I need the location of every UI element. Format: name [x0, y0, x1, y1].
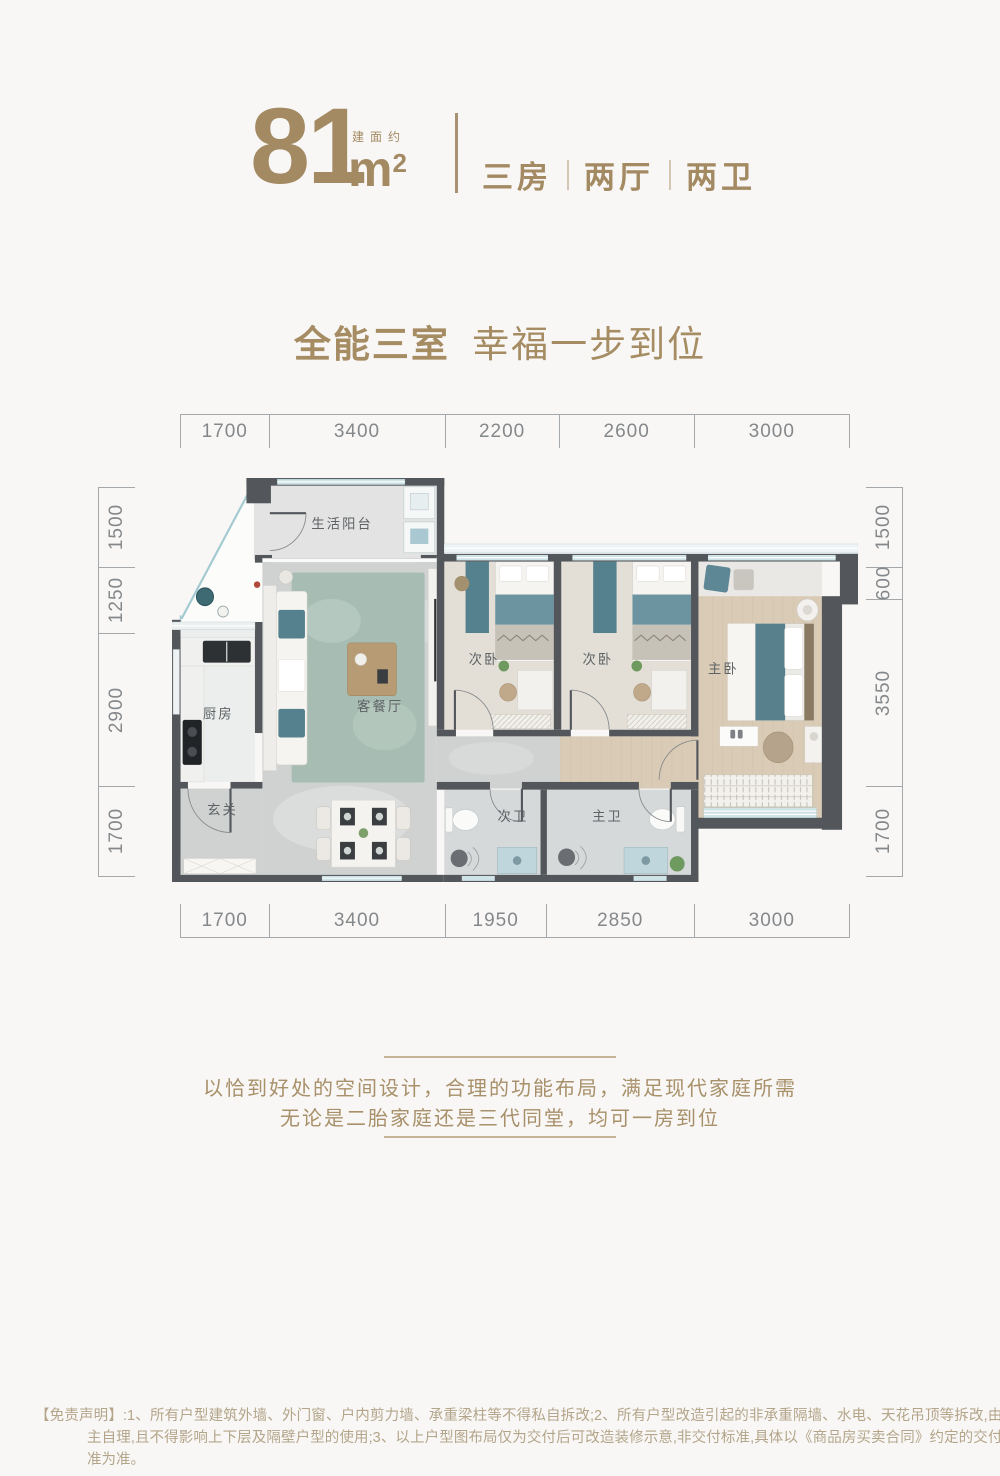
- desk-chair: [634, 684, 651, 702]
- terrace-kettle: [218, 606, 229, 617]
- feature-list: 三房 两厅 两卫: [482, 152, 756, 197]
- area-unit: m2: [348, 144, 407, 194]
- chair: [317, 837, 331, 860]
- desk-chair: [500, 684, 517, 702]
- dresser-mat: [627, 714, 687, 728]
- dim-value: 1500: [866, 487, 902, 568]
- description-divider-top: [384, 1056, 616, 1058]
- foyer-fittings: [184, 858, 256, 873]
- flower-pot: [254, 581, 260, 588]
- description-divider-bottom: [384, 1136, 616, 1138]
- wardrobe-teal: [593, 562, 616, 633]
- slogan-main: 全能三室: [294, 324, 450, 365]
- dimension-strip-left: 1500 1250 2900 1700: [98, 487, 135, 877]
- seat-pillow: [734, 569, 754, 590]
- disclaimer-prefix: 【免责声明】:: [35, 1408, 127, 1424]
- toilet: [453, 809, 479, 830]
- round-chair: [763, 732, 793, 763]
- label-master: 主卧: [708, 661, 739, 676]
- feature-rooms: 三房: [482, 152, 552, 197]
- shoe-cabinet: [184, 858, 256, 873]
- dim-value: 1700: [180, 415, 270, 448]
- unit-sup: 2: [392, 148, 406, 178]
- terrace-table: [196, 588, 213, 606]
- dim-value: 1500: [99, 487, 135, 568]
- poster-canvas: 81 建面约 m2 三房 两厅 两卫 全能三室 幸福一步到位 1700 3400…: [0, 0, 1000, 1476]
- tv: [434, 599, 436, 681]
- feature-separator: [567, 160, 569, 190]
- shower-head: [451, 850, 468, 868]
- plant: [499, 660, 510, 671]
- header-divider: [455, 113, 458, 193]
- label-bath-secondary: 次卫: [497, 809, 528, 824]
- desk: [652, 670, 687, 710]
- living-furniture: [263, 569, 436, 783]
- dim-value: 1250: [99, 568, 135, 634]
- dim-value: 3550: [866, 600, 902, 787]
- dimension-strip-top: 1700 3400 2200 2600 3000: [180, 414, 850, 448]
- terrace: [181, 485, 263, 622]
- sofa-back: [263, 586, 276, 771]
- side-table: [805, 726, 823, 762]
- label-bedroom-b: 次卧: [583, 652, 614, 667]
- seat-pillow: [703, 564, 731, 593]
- dim-value: 1700: [866, 787, 902, 877]
- label-bedroom-a: 次卧: [469, 652, 500, 667]
- disclaimer: 【免责声明】:1、所有户型建筑外墙、外门窗、户内剪力墙、承重梁柱等不得私自拆改;…: [35, 1405, 1000, 1472]
- chair: [396, 837, 410, 860]
- feature-separator: [669, 160, 671, 190]
- disclaimer-text: 1、所有户型建筑外墙、外门窗、户内剪力墙、承重梁柱等不得私自拆改;2、所有户型改…: [87, 1408, 1000, 1469]
- cooktop: [183, 720, 202, 765]
- unit-m: m: [348, 141, 392, 197]
- desk: [518, 670, 553, 710]
- floor-plan: 生活阳台 厨房 客餐厅 次卧 次卧 主卧 玄关 次卫 主卫: [172, 478, 858, 882]
- dim-value: 1700: [180, 904, 270, 937]
- headboard: [804, 624, 814, 721]
- plant: [454, 576, 469, 591]
- dim-value: 1950: [446, 904, 547, 937]
- label-foyer: 玄关: [207, 801, 238, 817]
- dimension-strip-bottom: 1700 3400 1950 2850 3000: [180, 904, 850, 938]
- feature-halls: 两厅: [584, 152, 654, 197]
- dim-value: 1700: [99, 787, 135, 877]
- dim-value: 3400: [270, 904, 446, 937]
- feature-baths: 两卫: [686, 152, 756, 197]
- chair: [317, 807, 331, 830]
- chair: [396, 807, 410, 830]
- dim-value: 2600: [560, 415, 695, 448]
- dimension-strip-right: 1500 600 3550 1700: [866, 487, 903, 877]
- dresser-mat: [491, 714, 551, 728]
- slogan-sub: 幸福一步到位: [472, 324, 706, 365]
- label-bath-master: 主卫: [592, 809, 623, 824]
- slogan: 全能三室 幸福一步到位: [0, 314, 1000, 368]
- dim-value: 3400: [270, 415, 446, 448]
- dim-value: 600: [866, 568, 902, 600]
- shower-head: [558, 848, 575, 866]
- sliding-door-track: [262, 558, 436, 562]
- description-line2: 无论是二胎家庭还是三代同堂，均可一房到位: [0, 1102, 1000, 1131]
- description-line1: 以恰到好处的空间设计，合理的功能布局，满足现代家庭所需: [0, 1072, 1000, 1101]
- dim-value: 3000: [695, 415, 850, 448]
- dim-value: 2200: [446, 415, 560, 448]
- dim-value: 3000: [695, 904, 850, 937]
- dim-value: 2900: [99, 634, 135, 787]
- floor-lamp: [279, 570, 293, 584]
- label-balcony: 生活阳台: [311, 516, 373, 531]
- floor-plan-svg: 生活阳台 厨房 客餐厅 次卧 次卧 主卧 玄关 次卫 主卫: [172, 478, 858, 882]
- label-kitchen: 厨房: [203, 707, 234, 722]
- label-living: 客餐厅: [357, 698, 403, 714]
- coffee-table: [347, 643, 396, 696]
- table-plant: [359, 828, 369, 838]
- dim-value: 2850: [547, 904, 695, 937]
- plant: [670, 856, 685, 871]
- wardrobe-teal: [466, 562, 489, 633]
- plant: [631, 660, 642, 671]
